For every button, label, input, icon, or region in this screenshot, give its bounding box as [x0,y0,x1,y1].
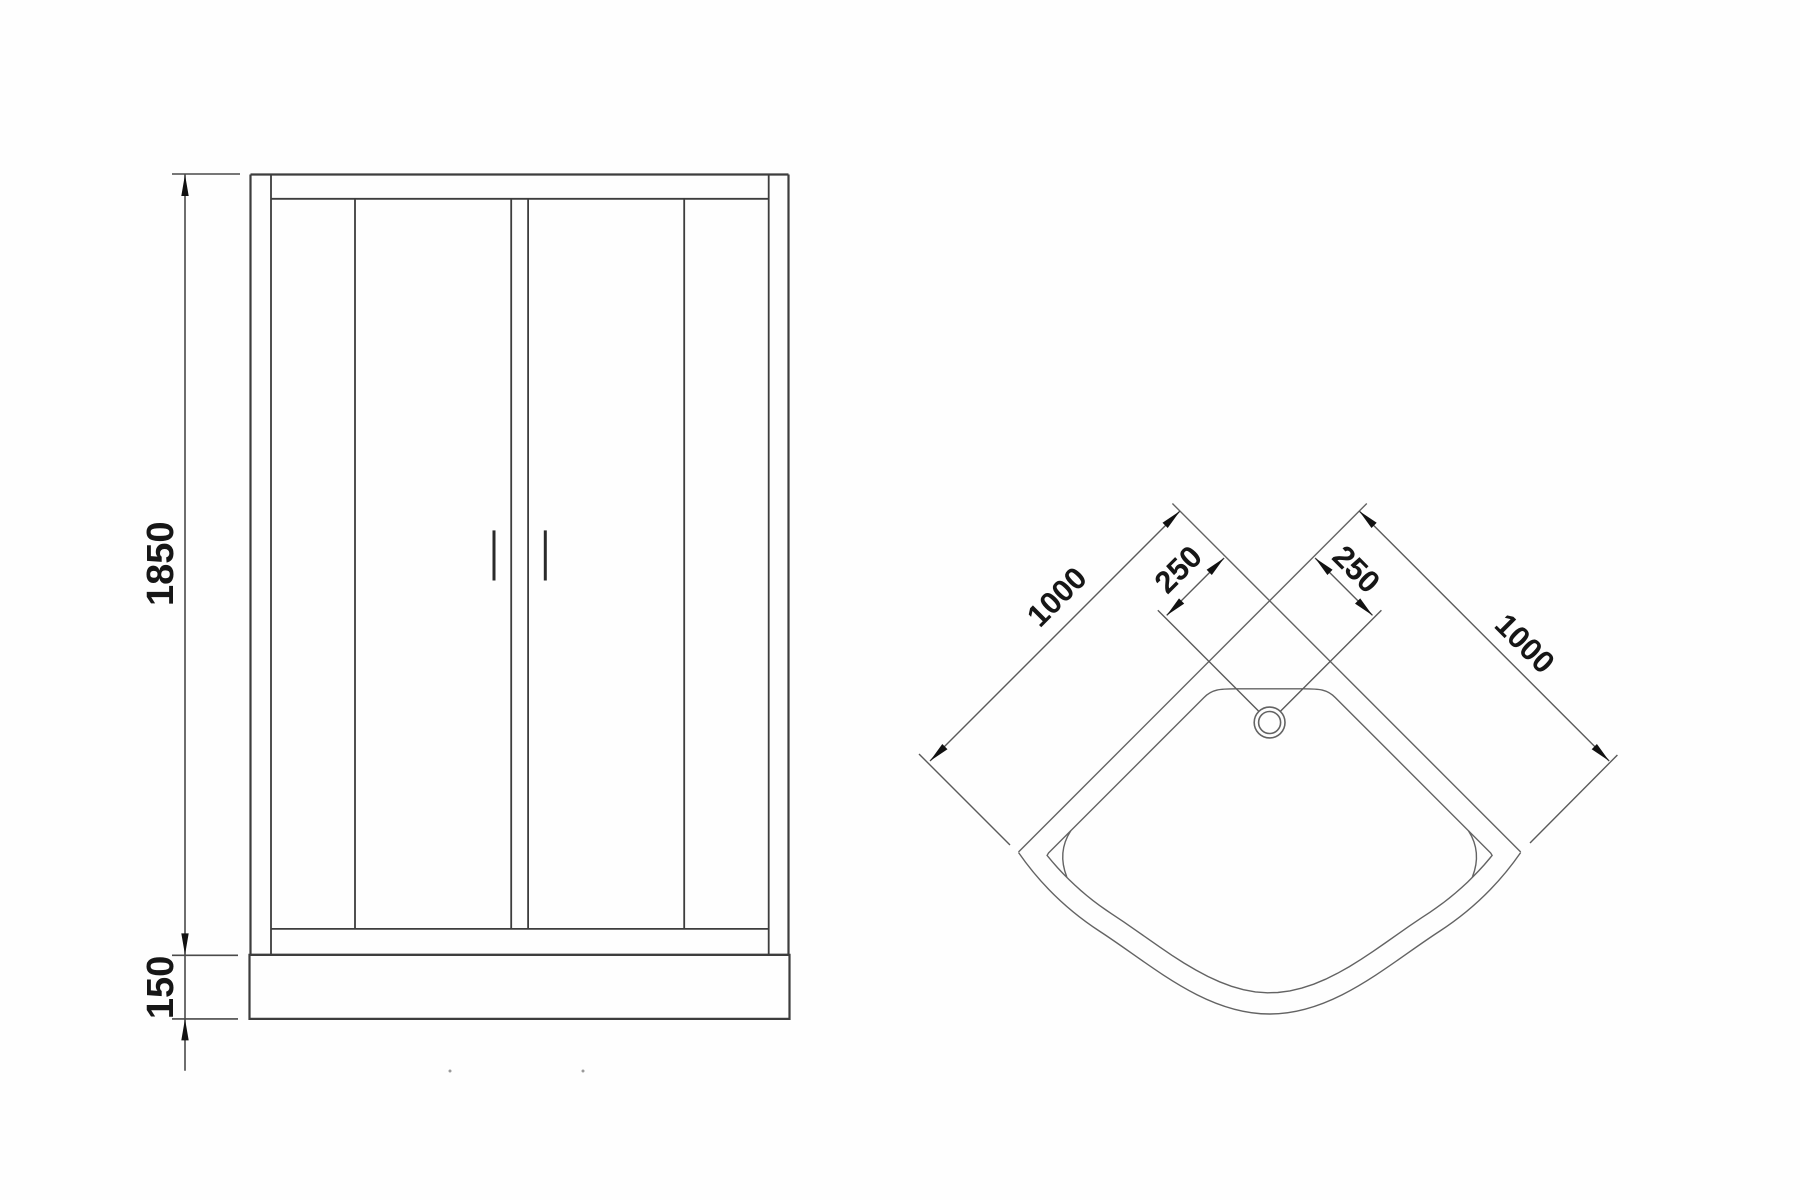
svg-text:1000: 1000 [1020,560,1094,634]
svg-text:250: 250 [1326,539,1387,600]
svg-text:150: 150 [140,956,182,1019]
svg-text:1000: 1000 [1488,607,1562,681]
svg-text:250: 250 [1148,539,1209,600]
svg-text:1850: 1850 [140,521,182,606]
